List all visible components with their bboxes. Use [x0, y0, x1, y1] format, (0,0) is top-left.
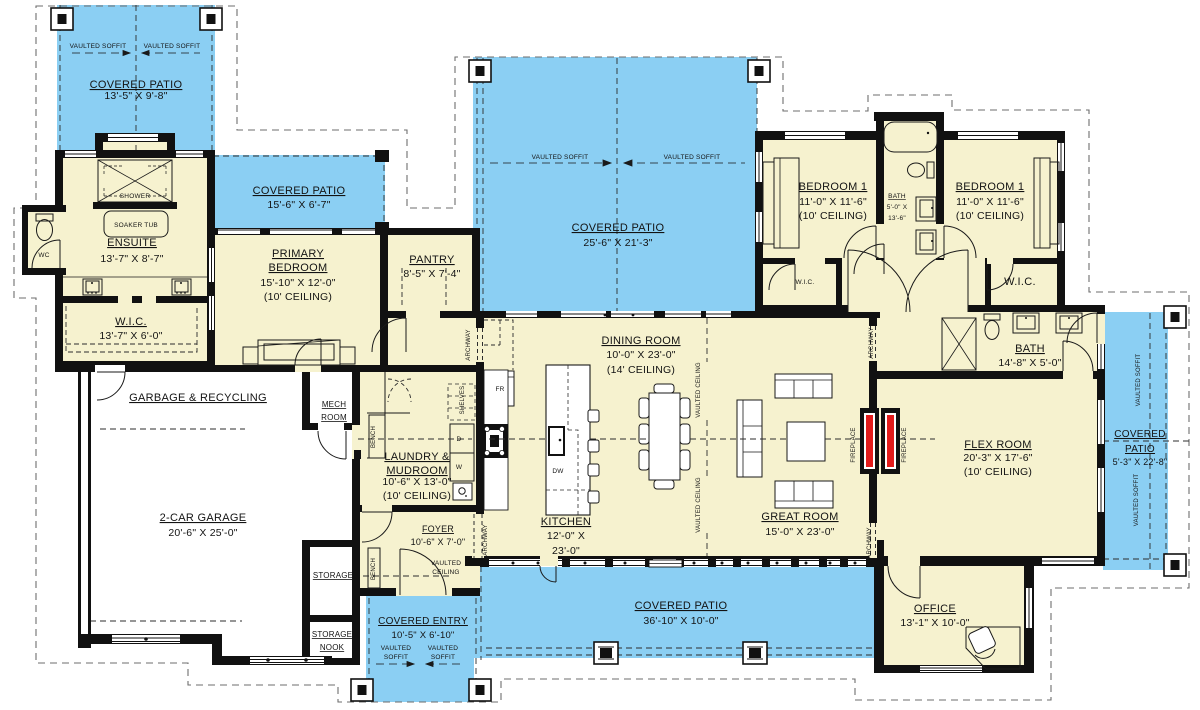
svg-text:15'-6" X 6'-7": 15'-6" X 6'-7"	[267, 199, 330, 211]
svg-text:VAULTED SOFFIT: VAULTED SOFFIT	[1136, 354, 1142, 407]
svg-text:D: D	[457, 436, 462, 443]
svg-text:COVERED PATIO: COVERED PATIO	[635, 600, 728, 612]
svg-text:ROOM: ROOM	[321, 413, 347, 422]
svg-text:FLEX ROOM: FLEX ROOM	[964, 439, 1032, 451]
svg-text:20'-6" X 25'-0": 20'-6" X 25'-0"	[168, 527, 237, 539]
svg-text:15'-10" X 12'-0": 15'-10" X 12'-0"	[260, 277, 335, 289]
svg-text:ENSUITE: ENSUITE	[107, 237, 157, 249]
svg-text:ARCHWAY: ARCHWAY	[483, 524, 489, 555]
svg-text:BEDROOM: BEDROOM	[269, 262, 328, 274]
svg-text:SOFFIT: SOFFIT	[431, 654, 455, 661]
svg-text:BENCH: BENCH	[371, 558, 377, 580]
svg-text:BEDROOM 1: BEDROOM 1	[799, 181, 868, 193]
svg-text:13'-6": 13'-6"	[888, 215, 906, 222]
svg-text:13'-7" X 6'-0": 13'-7" X 6'-0"	[99, 330, 162, 342]
svg-text:COVERED ENTRY: COVERED ENTRY	[378, 616, 468, 627]
svg-text:FR: FR	[495, 386, 504, 393]
svg-text:2-CAR GARAGE: 2-CAR GARAGE	[160, 512, 247, 524]
svg-text:FOYER: FOYER	[422, 524, 454, 534]
svg-text:WC: WC	[38, 252, 49, 259]
svg-text:(10' CEILING): (10' CEILING)	[799, 210, 867, 222]
svg-text:VAULTED SOFFIT: VAULTED SOFFIT	[144, 43, 201, 50]
svg-text:VAULTED SOFFIT: VAULTED SOFFIT	[664, 154, 721, 161]
svg-text:ARCHWAY: ARCHWAY	[466, 329, 472, 360]
svg-text:KITCHEN: KITCHEN	[541, 516, 591, 528]
svg-text:CEILING: CEILING	[432, 569, 459, 576]
svg-text:GREAT ROOM: GREAT ROOM	[761, 511, 838, 523]
svg-text:14'-8" X 5'-0": 14'-8" X 5'-0"	[998, 357, 1061, 369]
svg-text:PRIMARY: PRIMARY	[272, 248, 324, 260]
svg-text:DINING ROOM: DINING ROOM	[601, 335, 680, 347]
svg-text:W.I.C.: W.I.C.	[796, 279, 815, 286]
svg-text:10'-6" X 7'-0": 10'-6" X 7'-0"	[411, 537, 466, 547]
svg-text:VAULTED SOFFIT: VAULTED SOFFIT	[70, 43, 127, 50]
svg-text:5'-3" X 22'-8": 5'-3" X 22'-8"	[1113, 457, 1168, 467]
svg-text:25'-6" X 21'-3": 25'-6" X 21'-3"	[583, 237, 652, 249]
svg-text:13'-5" X 9'-8": 13'-5" X 9'-8"	[104, 90, 167, 102]
svg-text:OFFICE: OFFICE	[914, 603, 956, 615]
svg-text:PATIO: PATIO	[1125, 444, 1155, 455]
svg-text:BEDROOM 1: BEDROOM 1	[956, 181, 1025, 193]
svg-text:11'-0" X 11'-6": 11'-0" X 11'-6"	[956, 196, 1024, 208]
svg-text:VAULTED SOFFIT: VAULTED SOFFIT	[1134, 474, 1140, 527]
svg-text:MECH: MECH	[322, 400, 346, 409]
svg-text:23'-0": 23'-0"	[552, 545, 580, 557]
svg-text:SHOWER: SHOWER	[120, 193, 151, 200]
svg-text:8'-5" X 7'-4": 8'-5" X 7'-4"	[403, 268, 460, 280]
svg-text:15'-0" X 23'-0": 15'-0" X 23'-0"	[765, 526, 834, 538]
svg-text:(10' CEILING): (10' CEILING)	[964, 466, 1032, 478]
svg-text:13'-7" X 8'-7": 13'-7" X 8'-7"	[100, 253, 163, 265]
svg-text:COVERED PATIO: COVERED PATIO	[572, 222, 665, 234]
svg-text:STORAGE: STORAGE	[312, 630, 352, 639]
svg-text:SHELVES: SHELVES	[460, 386, 466, 415]
svg-text:BENCH: BENCH	[371, 426, 377, 448]
svg-text:13'-1" X 10'-0": 13'-1" X 10'-0"	[900, 617, 969, 629]
svg-text:VAULTED: VAULTED	[381, 645, 412, 652]
svg-text:VAULTED CEILING: VAULTED CEILING	[696, 477, 702, 533]
svg-text:W.I.C.: W.I.C.	[115, 316, 147, 328]
svg-text:SOAKER TUB: SOAKER TUB	[114, 222, 158, 229]
svg-text:STORAGE: STORAGE	[313, 571, 353, 580]
svg-text:(14' CEILING): (14' CEILING)	[607, 364, 675, 376]
svg-text:(10' CEILING): (10' CEILING)	[264, 291, 332, 303]
svg-text:PANTRY: PANTRY	[409, 254, 455, 266]
svg-text:COVERED PATIO: COVERED PATIO	[253, 185, 346, 197]
svg-text:10'-6" X 13'-0": 10'-6" X 13'-0"	[382, 476, 451, 488]
svg-text:BATH: BATH	[1015, 343, 1045, 355]
svg-text:FIREPLACE: FIREPLACE	[851, 427, 857, 462]
svg-text:ARCHWAY: ARCHWAY	[869, 327, 875, 358]
svg-text:36'-10" X 10'-0": 36'-10" X 10'-0"	[643, 615, 718, 627]
svg-text:W.I.C.: W.I.C.	[1004, 276, 1036, 288]
svg-text:11'-0" X 11'-6": 11'-0" X 11'-6"	[799, 196, 867, 208]
svg-text:ARCHWAY: ARCHWAY	[867, 527, 873, 558]
svg-text:(10' CEILING): (10' CEILING)	[383, 490, 451, 502]
svg-text:VAULTED: VAULTED	[431, 560, 462, 567]
svg-text:LAUNDRY &: LAUNDRY &	[384, 451, 450, 463]
svg-text:12'-0" X: 12'-0" X	[547, 530, 585, 542]
svg-text:20'-3" X 17'-6": 20'-3" X 17'-6"	[963, 452, 1032, 464]
svg-text:10'-0" X 23'-0": 10'-0" X 23'-0"	[606, 349, 675, 361]
svg-text:VAULTED: VAULTED	[428, 645, 459, 652]
svg-text:FIREPLACE: FIREPLACE	[902, 427, 908, 462]
svg-text:SOFFIT: SOFFIT	[384, 654, 408, 661]
svg-text:(10' CEILING): (10' CEILING)	[956, 210, 1024, 222]
svg-text:DW: DW	[552, 468, 564, 475]
svg-text:COVERED: COVERED	[1114, 429, 1166, 440]
svg-text:NOOK: NOOK	[320, 643, 345, 652]
svg-text:W: W	[456, 464, 463, 471]
svg-text:5'-0" X: 5'-0" X	[887, 204, 908, 211]
svg-text:10'-5" X 6'-10": 10'-5" X 6'-10"	[391, 630, 454, 641]
svg-text:VAULTED SOFFIT: VAULTED SOFFIT	[532, 154, 589, 161]
svg-text:VAULTED CEILING: VAULTED CEILING	[696, 362, 702, 418]
svg-text:BATH: BATH	[888, 193, 906, 200]
svg-text:GARBAGE & RECYCLING: GARBAGE & RECYCLING	[129, 392, 267, 404]
